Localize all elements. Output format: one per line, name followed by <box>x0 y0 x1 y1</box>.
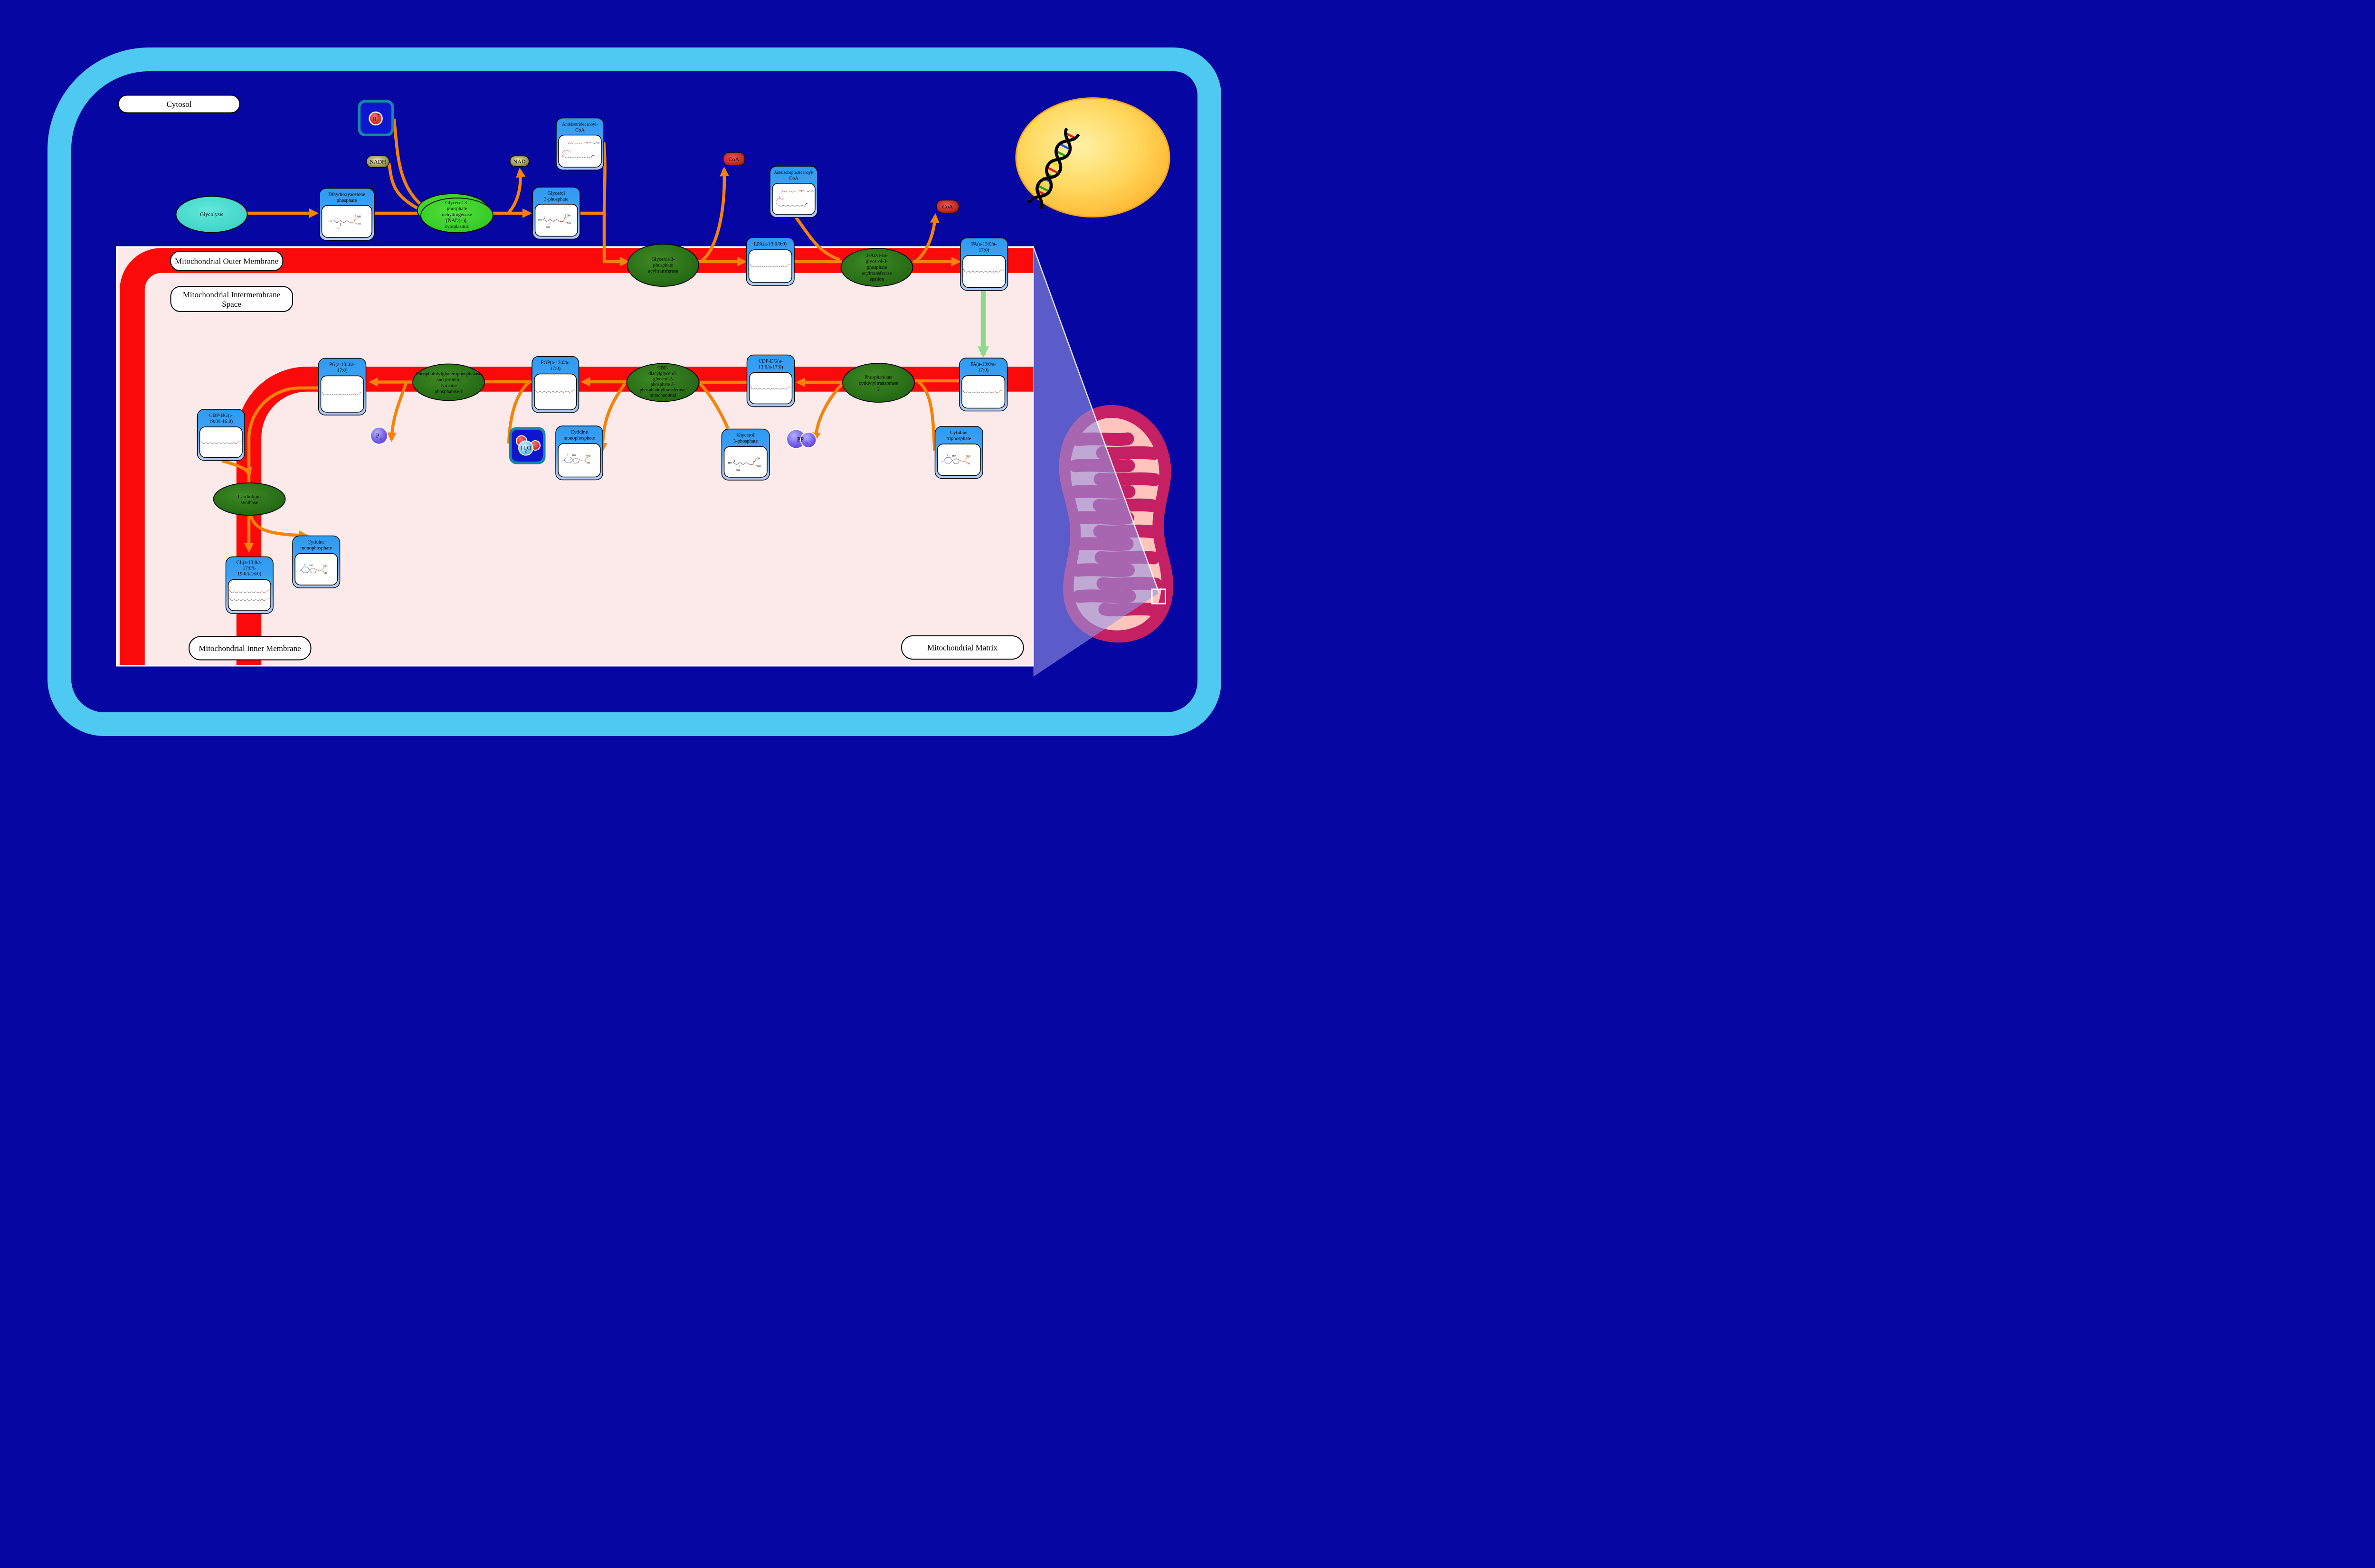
svg-text:2: 2 <box>525 449 527 454</box>
svg-text:13:0/a-17:0): 13:0/a-17:0) <box>759 365 783 370</box>
svg-text:Anteisoheptadecanoyl-: Anteisoheptadecanoyl- <box>774 170 814 175</box>
svg-text:17:0): 17:0) <box>337 368 348 373</box>
svg-text:monophosphate: monophosphate <box>563 436 595 441</box>
svg-text:CoA: CoA <box>942 203 953 210</box>
svg-text:Glycerol-3-: Glycerol-3- <box>446 200 469 206</box>
svg-text:CDP-DG(a-: CDP-DG(a- <box>759 359 783 364</box>
svg-text:H: H <box>372 115 377 123</box>
svg-text:NADH: NADH <box>370 159 386 165</box>
svg-text:LPA(a-13:0/0:0): LPA(a-13:0/0:0) <box>754 242 787 247</box>
svg-text:acyltransferase: acyltransferase <box>648 269 678 274</box>
svg-text:Space: Space <box>222 300 241 309</box>
svg-text:monophosphate: monophosphate <box>300 546 332 551</box>
svg-text:i: i <box>807 441 808 445</box>
svg-text:O: O <box>527 445 531 452</box>
svg-text:Glycerol: Glycerol <box>737 433 754 438</box>
svg-text:phosphate: phosphate <box>653 263 674 268</box>
svg-text:CoA: CoA <box>789 176 798 181</box>
svg-text:CoA: CoA <box>575 128 585 133</box>
svg-text:19:0/i-16:0): 19:0/i-16:0) <box>209 419 233 425</box>
svg-text:and protein-: and protein- <box>437 378 461 383</box>
svg-text:diacylglycerol-: diacylglycerol- <box>648 371 677 377</box>
svg-text:Cytidine: Cytidine <box>307 540 325 545</box>
svg-text:Cytosol: Cytosol <box>167 100 192 109</box>
svg-text:19:0/i-16:0): 19:0/i-16:0) <box>237 572 262 577</box>
svg-text:phosphate: phosphate <box>337 198 357 203</box>
svg-text:+: + <box>377 112 380 118</box>
svg-text:17:0/i-: 17:0/i- <box>243 566 256 571</box>
svg-text:CoA: CoA <box>729 156 740 162</box>
svg-text:phosphatase 1: phosphatase 1 <box>435 389 463 395</box>
svg-text:PG(a-13:0/a-: PG(a-13:0/a- <box>329 362 355 368</box>
svg-text:Mitochondrial Outer Membrane: Mitochondrial Outer Membrane <box>175 257 278 266</box>
svg-text:PA(a-13:0/a-: PA(a-13:0/a- <box>970 362 996 367</box>
svg-text:Anteisotridecanoyl-: Anteisotridecanoyl- <box>562 123 598 127</box>
svg-text:Mitochondrial Inner Membrane: Mitochondrial Inner Membrane <box>199 644 301 653</box>
svg-text:Glycerol-3-: Glycerol-3- <box>652 257 675 262</box>
svg-text:17:0): 17:0) <box>550 366 561 371</box>
svg-text:glycerol-3-: glycerol-3- <box>866 259 888 264</box>
svg-text:epsilon: epsilon <box>870 277 884 282</box>
svg-text:3-phosphate: 3-phosphate <box>544 197 569 202</box>
svg-text:mitochondrial: mitochondrial <box>649 393 676 398</box>
svg-text:Mitochondrial Intermembrane: Mitochondrial Intermembrane <box>183 290 280 299</box>
svg-text:tyrosine: tyrosine <box>441 383 457 388</box>
svg-text:phosphate: phosphate <box>867 265 887 270</box>
svg-text:cytoplasmic: cytoplasmic <box>445 224 469 229</box>
svg-text:NAD: NAD <box>513 158 526 165</box>
svg-text:CL(a-13:0/a-: CL(a-13:0/a- <box>237 560 263 566</box>
svg-text:cytidylyltransferase: cytidylyltransferase <box>859 381 898 386</box>
svg-text:PGP(a-13:0/a-: PGP(a-13:0/a- <box>541 360 570 366</box>
svg-text:CDP-DG(i-: CDP-DG(i- <box>209 413 233 418</box>
svg-text:phosphatidyltransferase,: phosphatidyltransferase, <box>640 387 686 393</box>
svg-text:acyltransferase: acyltransferase <box>862 271 892 276</box>
svg-text:dehydrogenase: dehydrogenase <box>442 212 472 217</box>
svg-text:phosphate: phosphate <box>447 207 467 212</box>
svg-text:Mitochondrial Matrix: Mitochondrial Matrix <box>927 643 997 652</box>
svg-text:Cytidine: Cytidine <box>950 430 968 435</box>
svg-text:CDP-: CDP- <box>657 366 668 371</box>
svg-text:Dihydroxyacetone: Dihydroxyacetone <box>328 192 365 198</box>
svg-text:P: P <box>376 433 380 439</box>
svg-text:Phosphatidate: Phosphatidate <box>864 375 893 380</box>
svg-text:1-Acyl-sn-: 1-Acyl-sn- <box>866 253 888 258</box>
svg-text:PP: PP <box>797 436 804 443</box>
svg-text:phosphate 3-: phosphate 3- <box>651 382 675 387</box>
svg-text:i: i <box>380 437 382 442</box>
svg-text:Cytidine: Cytidine <box>570 430 588 435</box>
svg-text:17:0): 17:0) <box>978 368 989 373</box>
svg-text:3-phosphate: 3-phosphate <box>733 439 758 444</box>
svg-text:Glycolysis: Glycolysis <box>200 212 224 217</box>
svg-text:[NAD(+)],: [NAD(+)], <box>446 218 467 224</box>
svg-text:Cardiolipin: Cardiolipin <box>238 494 261 500</box>
svg-text:Glycerol: Glycerol <box>548 191 565 196</box>
svg-text:Phosphatidylglycerophosphatase: Phosphatidylglycerophosphatase <box>416 371 482 377</box>
svg-text:17:0): 17:0) <box>978 248 989 253</box>
svg-text:PA(a-13:0/a-: PA(a-13:0/a- <box>971 242 997 247</box>
svg-text:synthase: synthase <box>241 501 258 506</box>
svg-text:2: 2 <box>877 387 880 392</box>
svg-text:triphosphate: triphosphate <box>947 436 971 442</box>
svg-text:-glycerol-3-: -glycerol-3- <box>652 377 674 382</box>
